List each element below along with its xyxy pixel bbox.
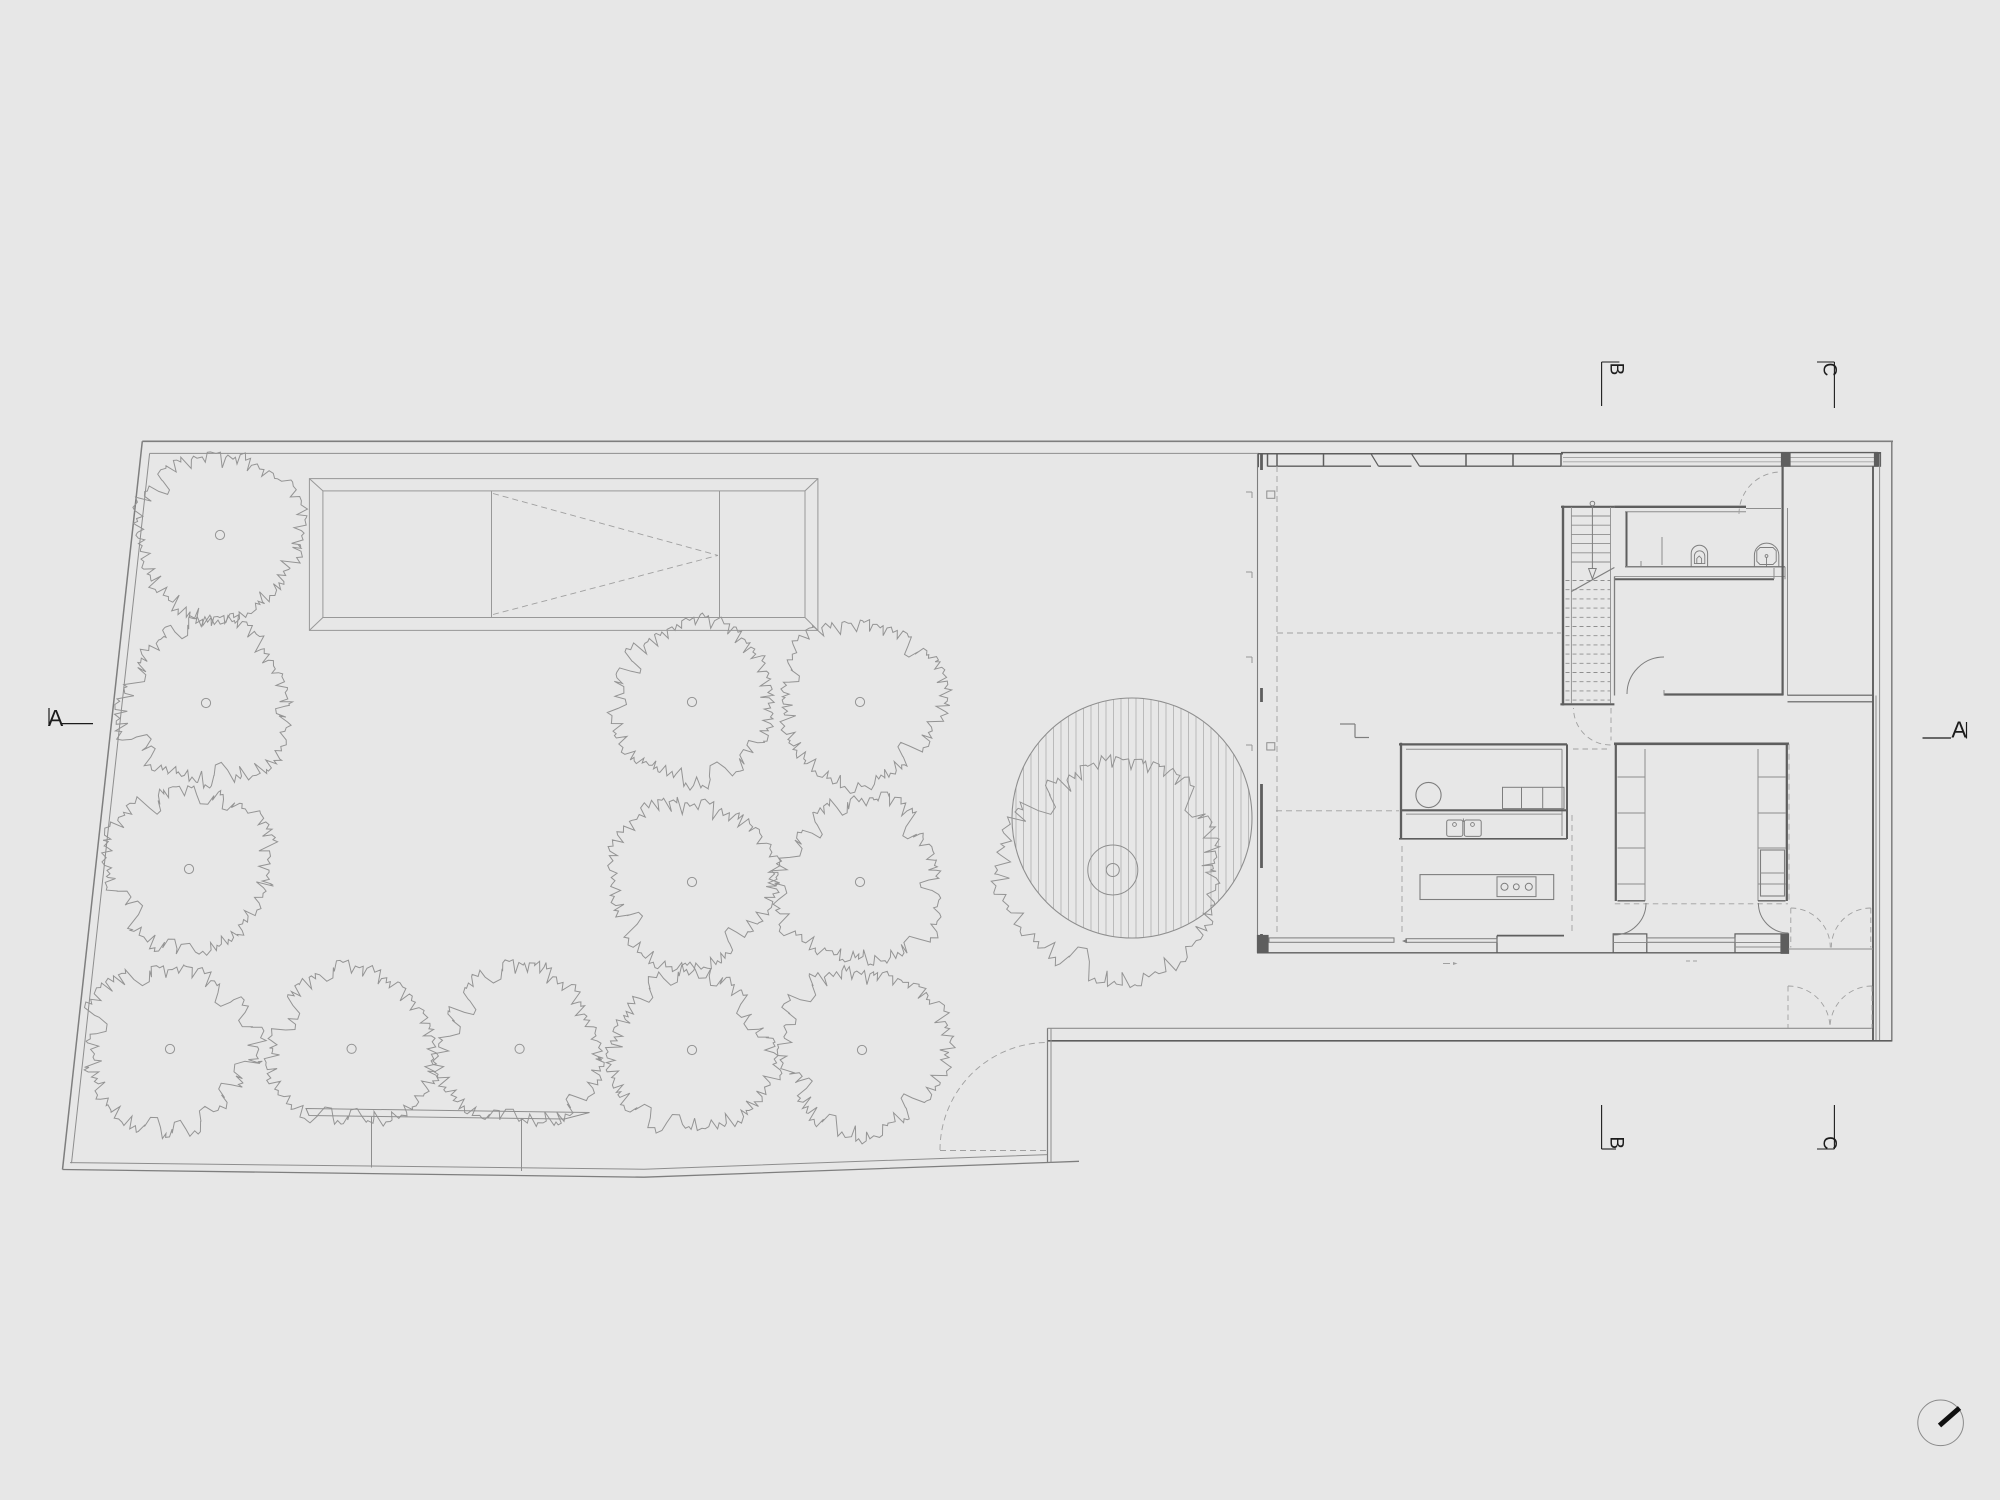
svg-text:A: A bbox=[48, 705, 64, 731]
svg-text:B: B bbox=[1606, 1136, 1627, 1149]
svg-text:A: A bbox=[1951, 717, 1967, 743]
svg-text:C: C bbox=[1819, 363, 1840, 377]
svg-text:B: B bbox=[1606, 363, 1627, 376]
svg-text:C: C bbox=[1819, 1136, 1840, 1150]
